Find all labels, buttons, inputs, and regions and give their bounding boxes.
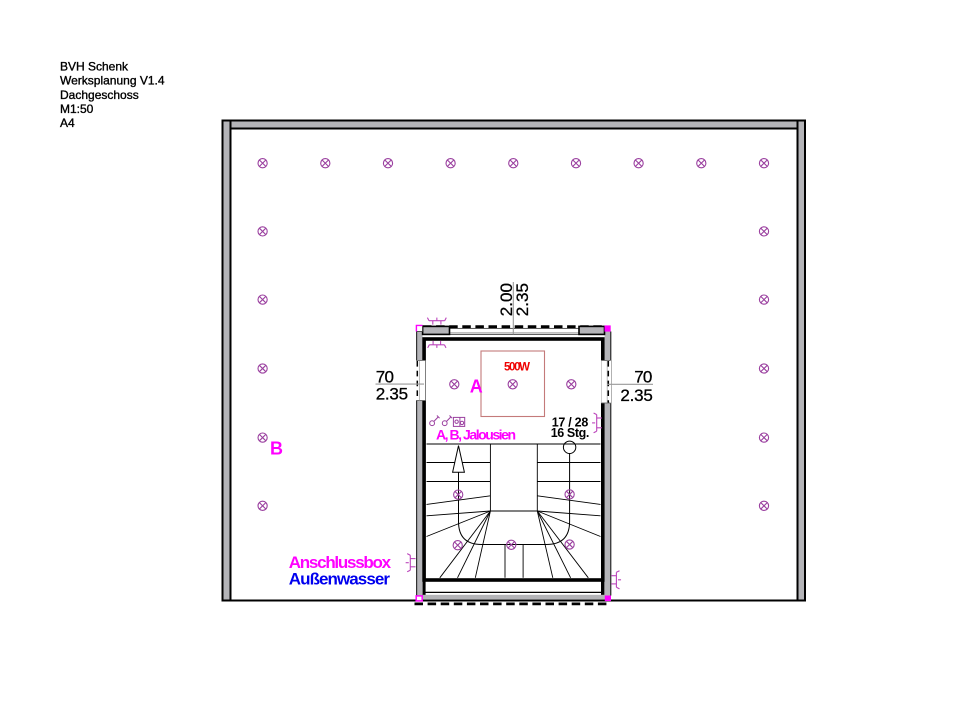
svg-text:B: B [270,438,283,458]
svg-text:2.35: 2.35 [513,283,532,316]
svg-text:70: 70 [634,367,652,386]
svg-text:BVH Schenk: BVH Schenk [60,60,129,74]
svg-text:Dachgeschoss: Dachgeschoss [60,88,139,102]
svg-text:500W: 500W [504,361,530,373]
svg-text:Werksplanung V1.4: Werksplanung V1.4 [60,74,165,88]
svg-text:M1:50: M1:50 [60,102,94,116]
svg-text:A, B, Jalousien: A, B, Jalousien [436,426,516,442]
svg-text:A: A [470,377,483,397]
svg-text:2.35: 2.35 [620,386,652,405]
svg-text:A4: A4 [60,116,75,130]
svg-text:16 Stg.: 16 Stg. [551,426,590,440]
svg-text:Außenwasser: Außenwasser [289,570,391,589]
svg-text:2.35: 2.35 [376,384,408,403]
